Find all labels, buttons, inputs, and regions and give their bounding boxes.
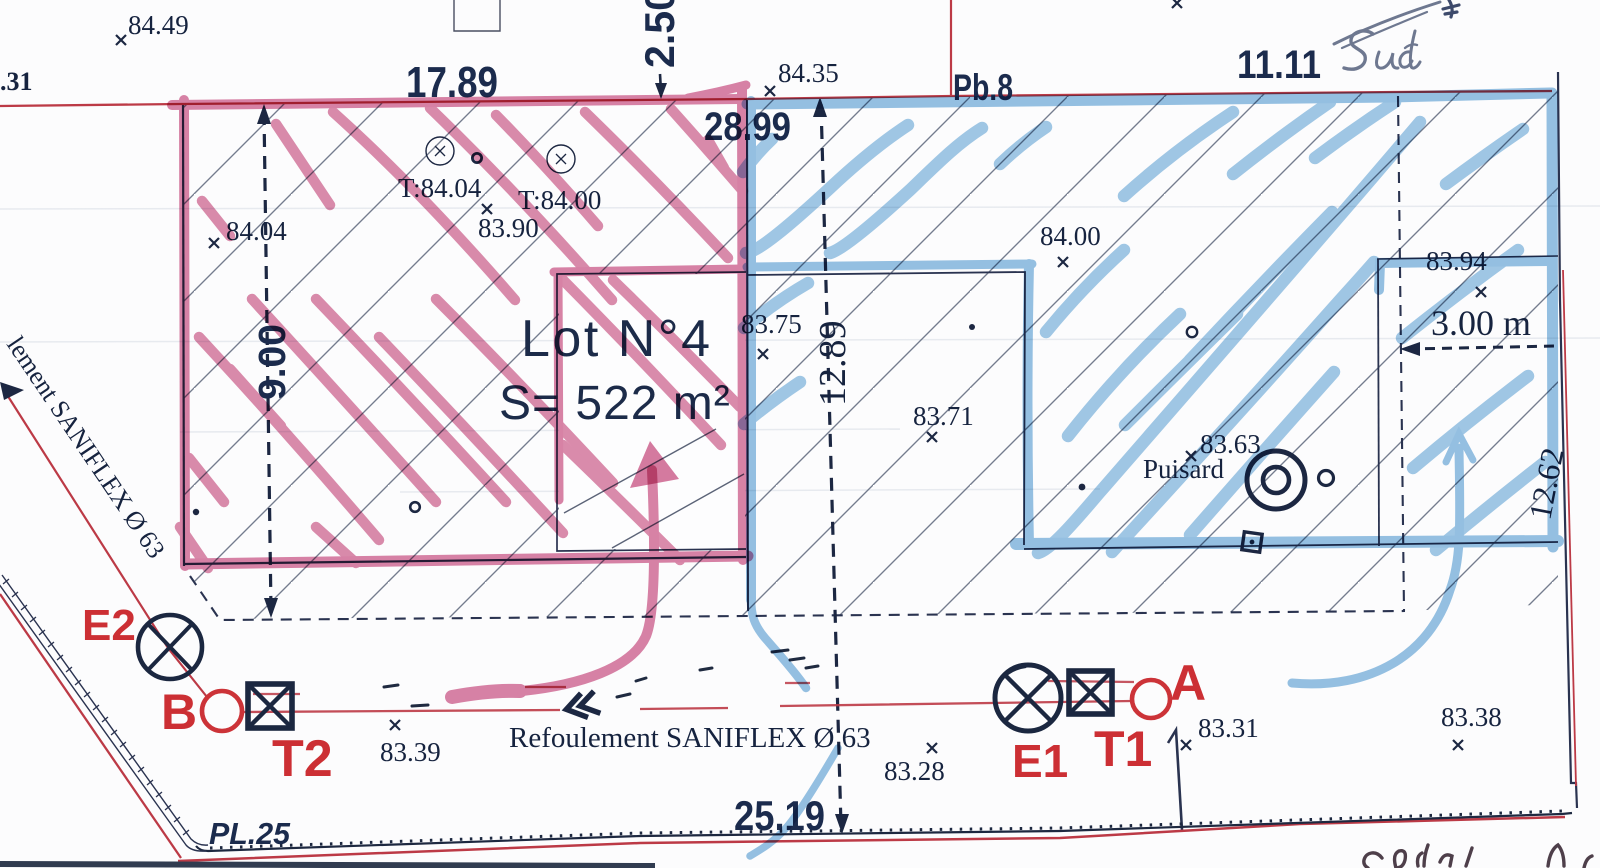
- svg-text:T1: T1: [1094, 721, 1152, 777]
- svg-text:.31: .31: [0, 67, 33, 96]
- svg-text:2.50: 2.50: [636, 0, 683, 68]
- svg-text:83.28: 83.28: [884, 756, 945, 786]
- svg-text:E1: E1: [1012, 735, 1068, 787]
- svg-text:84.49: 84.49: [128, 10, 189, 40]
- svg-text:E2: E2: [82, 601, 136, 650]
- svg-text:84.35: 84.35: [778, 58, 839, 88]
- svg-text:83.38: 83.38: [1441, 702, 1502, 732]
- svg-text:B: B: [161, 684, 197, 740]
- svg-text:12.89: 12.89: [812, 321, 854, 407]
- svg-text:83.71: 83.71: [913, 401, 974, 431]
- svg-text:Refoulement SANIFLEX Ø 63: Refoulement SANIFLEX Ø 63: [509, 722, 871, 754]
- svg-text:84.00: 84.00: [1040, 221, 1101, 251]
- svg-text:11.11: 11.11: [1237, 43, 1321, 87]
- svg-text:83.39: 83.39: [380, 737, 441, 767]
- svg-text:T2: T2: [272, 730, 333, 788]
- svg-text:83.31: 83.31: [1198, 713, 1259, 743]
- svg-text:83.90: 83.90: [478, 213, 539, 243]
- svg-text:84.04: 84.04: [226, 216, 287, 246]
- svg-text:A: A: [1170, 655, 1206, 711]
- svg-text:PL.25: PL.25: [209, 816, 291, 851]
